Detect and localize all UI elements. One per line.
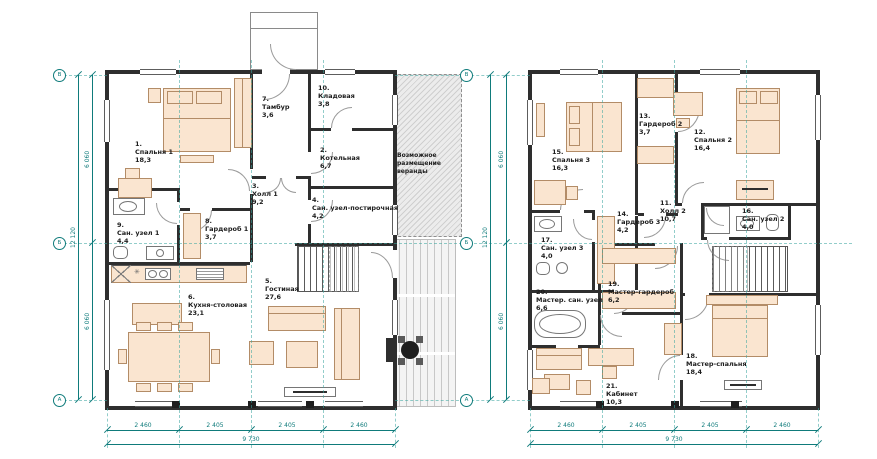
coffee-table [286, 341, 318, 368]
closet [637, 146, 674, 164]
outdoor-table [401, 341, 419, 359]
window [815, 95, 821, 140]
window [560, 401, 600, 407]
sink [119, 201, 137, 212]
grid-line [323, 60, 324, 448]
bed-line [736, 120, 780, 121]
closet [602, 248, 676, 264]
bed-line [712, 318, 768, 319]
room-label: 8.Гардероб 13,7 [205, 217, 248, 241]
armchair [249, 341, 274, 365]
axis-bubble-b: Б [53, 237, 66, 250]
window [104, 300, 110, 370]
pillow [569, 106, 580, 124]
dimension-line [107, 444, 395, 445]
dimension-line [78, 75, 79, 400]
desk [118, 178, 152, 198]
armchair [532, 378, 550, 394]
chair [566, 186, 578, 200]
interior-wall [180, 208, 190, 211]
window [104, 100, 110, 142]
window [325, 401, 363, 407]
stove [196, 268, 224, 280]
room-label: 1.Спальня 118,3 [135, 140, 173, 164]
interior-wall [308, 74, 311, 152]
room-label: 13.Гардероб 23,7 [639, 112, 682, 136]
headboard [706, 295, 778, 305]
bed-line [163, 118, 231, 119]
dimension-line [92, 75, 93, 400]
dimension-line [530, 444, 818, 445]
room-label: 5.Гостиная27,6 [265, 277, 299, 301]
desk [588, 348, 634, 366]
porch-step [250, 28, 318, 29]
sink [539, 219, 555, 229]
deck-door-opening [392, 250, 398, 278]
armchair [576, 380, 591, 395]
chair [178, 322, 193, 331]
window [560, 69, 598, 75]
interior-wall [729, 237, 791, 240]
chair [602, 366, 617, 379]
outdoor-chair [416, 358, 423, 365]
dim-label: 6 060 [498, 75, 505, 243]
bathtub-inner [539, 314, 581, 334]
veranda-note: Возможное размещение веранды [397, 152, 449, 175]
dim-label: 2 405 [602, 422, 674, 429]
wardrobe [234, 78, 252, 148]
wall-post [671, 401, 679, 408]
dim-label: 2 405 [179, 422, 251, 429]
interior-wall [675, 132, 678, 205]
pillow [196, 91, 222, 104]
room-label: 19.Мастер-гардероб6,2 [608, 280, 674, 304]
pillow [569, 128, 580, 146]
dim-label: 6 060 [498, 243, 505, 400]
wall-post [306, 401, 314, 408]
dim-label: 2 405 [251, 422, 323, 429]
sofa-line [536, 355, 582, 356]
toilet [536, 262, 550, 275]
floor-plan-drawing: Возможное размещение веранды [0, 0, 877, 459]
interior-wall [352, 128, 393, 131]
dim-total-label: 12 120 [70, 75, 77, 400]
dim-label: 2 460 [107, 422, 179, 429]
dim-label: 6 060 [84, 75, 91, 243]
room-label: 20.Мастер. сан. узел6,6 [536, 288, 603, 312]
grid-line [602, 60, 603, 448]
fireplace [386, 338, 395, 362]
tv [293, 391, 327, 393]
fridge [111, 265, 131, 283]
grid-line-row-b [54, 243, 852, 244]
room-label: 6.Кухня-столовая23,1 [188, 293, 247, 317]
window [140, 69, 176, 75]
interior-wall [592, 210, 595, 220]
dresser [736, 180, 774, 200]
chair [125, 168, 140, 179]
dim-label: 2 460 [323, 422, 395, 429]
pillow [167, 91, 193, 104]
wall-post [248, 401, 256, 408]
grid-line [746, 60, 747, 448]
chair [178, 383, 193, 392]
bed [712, 305, 768, 357]
dimension-line [490, 75, 491, 400]
room-label: 17.Сан. узел 34,0 [541, 236, 583, 260]
shelf [536, 103, 545, 137]
dim-label: 2 460 [746, 422, 818, 429]
interior-wall [680, 380, 683, 406]
closet [637, 78, 674, 98]
nightstand [148, 88, 161, 103]
dimension-line [506, 75, 507, 400]
interior-wall [532, 210, 560, 213]
interior-wall [252, 176, 266, 179]
chair [157, 322, 172, 331]
bidet [556, 262, 568, 274]
room-label: 14.Гардероб 34,2 [617, 210, 660, 234]
room-label: 10.Кладовая3,8 [318, 84, 355, 108]
interior-wall [788, 203, 791, 237]
staircase-upper-flight [329, 246, 359, 292]
interior-wall [592, 242, 595, 290]
tv [730, 384, 756, 386]
room-label: 7.Тамбур3,6 [262, 95, 290, 119]
room-label: 18.Мастер-спальня18,4 [686, 352, 747, 376]
sink-bowl [159, 270, 168, 278]
dim-total-label: 9 730 [107, 436, 395, 443]
interior-wall [622, 312, 680, 315]
axis-bubble-a: А [53, 394, 66, 407]
room-label: 15.Спальня 316,3 [552, 148, 590, 172]
axis-bubble-b: Б [460, 237, 473, 250]
chair [211, 349, 220, 364]
grid-line [251, 60, 252, 448]
interior-wall [296, 176, 310, 179]
chair [157, 383, 172, 392]
axis-bubble-a: А [460, 394, 473, 407]
dim-label: 6 060 [84, 243, 91, 400]
window [700, 69, 740, 75]
dim-label: 2 460 [530, 422, 602, 429]
desk [534, 180, 566, 205]
sofa-line [341, 308, 342, 380]
axis-bubble-v: В [460, 69, 473, 82]
wardrobe-line [242, 78, 243, 148]
room-label: 12.Спальня 216,4 [694, 128, 732, 152]
window [815, 305, 821, 355]
dim-total-label: 9 730 [530, 436, 818, 443]
window [392, 300, 398, 335]
shower-drain [156, 249, 164, 257]
sink-bowl [148, 270, 157, 278]
room-label: 3.Холл 19,2 [252, 182, 278, 206]
dining-table [128, 332, 210, 382]
pillow [760, 91, 778, 104]
window [527, 100, 533, 145]
dim-label: 2 405 [674, 422, 746, 429]
closet [183, 213, 201, 259]
window [258, 401, 302, 407]
chair [136, 322, 151, 331]
axis-bubble-v: В [53, 69, 66, 82]
pillow [739, 91, 757, 104]
chair [118, 349, 127, 364]
wall-post [731, 401, 739, 408]
outdoor-chair [398, 358, 405, 365]
room-label: 21.Кабинет10,3 [606, 382, 637, 406]
toilet [113, 246, 128, 259]
room-label: 16.Сан. узел 24,0 [742, 207, 784, 231]
dim-total-label: 12 120 [482, 75, 489, 400]
bench [180, 155, 214, 163]
grid-line [179, 60, 180, 448]
bed-line [592, 102, 593, 152]
cabinet [664, 323, 682, 355]
window [392, 95, 398, 125]
interior-wall [308, 224, 311, 245]
kitchen-star-icon: ✳ [134, 268, 140, 276]
room-label: 11.Холл 210,7 [660, 199, 686, 223]
room-label: 4.Сан. узел-постирочная4,2 [312, 196, 398, 220]
sofa [268, 306, 326, 331]
window [325, 69, 355, 75]
staircase-upper-flight [712, 246, 748, 292]
room-label: 9.Сан. узел 14,4 [117, 221, 159, 245]
chair [136, 383, 151, 392]
room-label: 2.Котельная6,7 [320, 146, 360, 170]
outdoor-chair [416, 336, 423, 343]
sofa-long [334, 308, 360, 380]
sofa-line [268, 313, 326, 314]
window [135, 401, 177, 407]
interior-wall [212, 208, 250, 211]
interior-wall [311, 128, 331, 131]
sofa [536, 348, 582, 370]
